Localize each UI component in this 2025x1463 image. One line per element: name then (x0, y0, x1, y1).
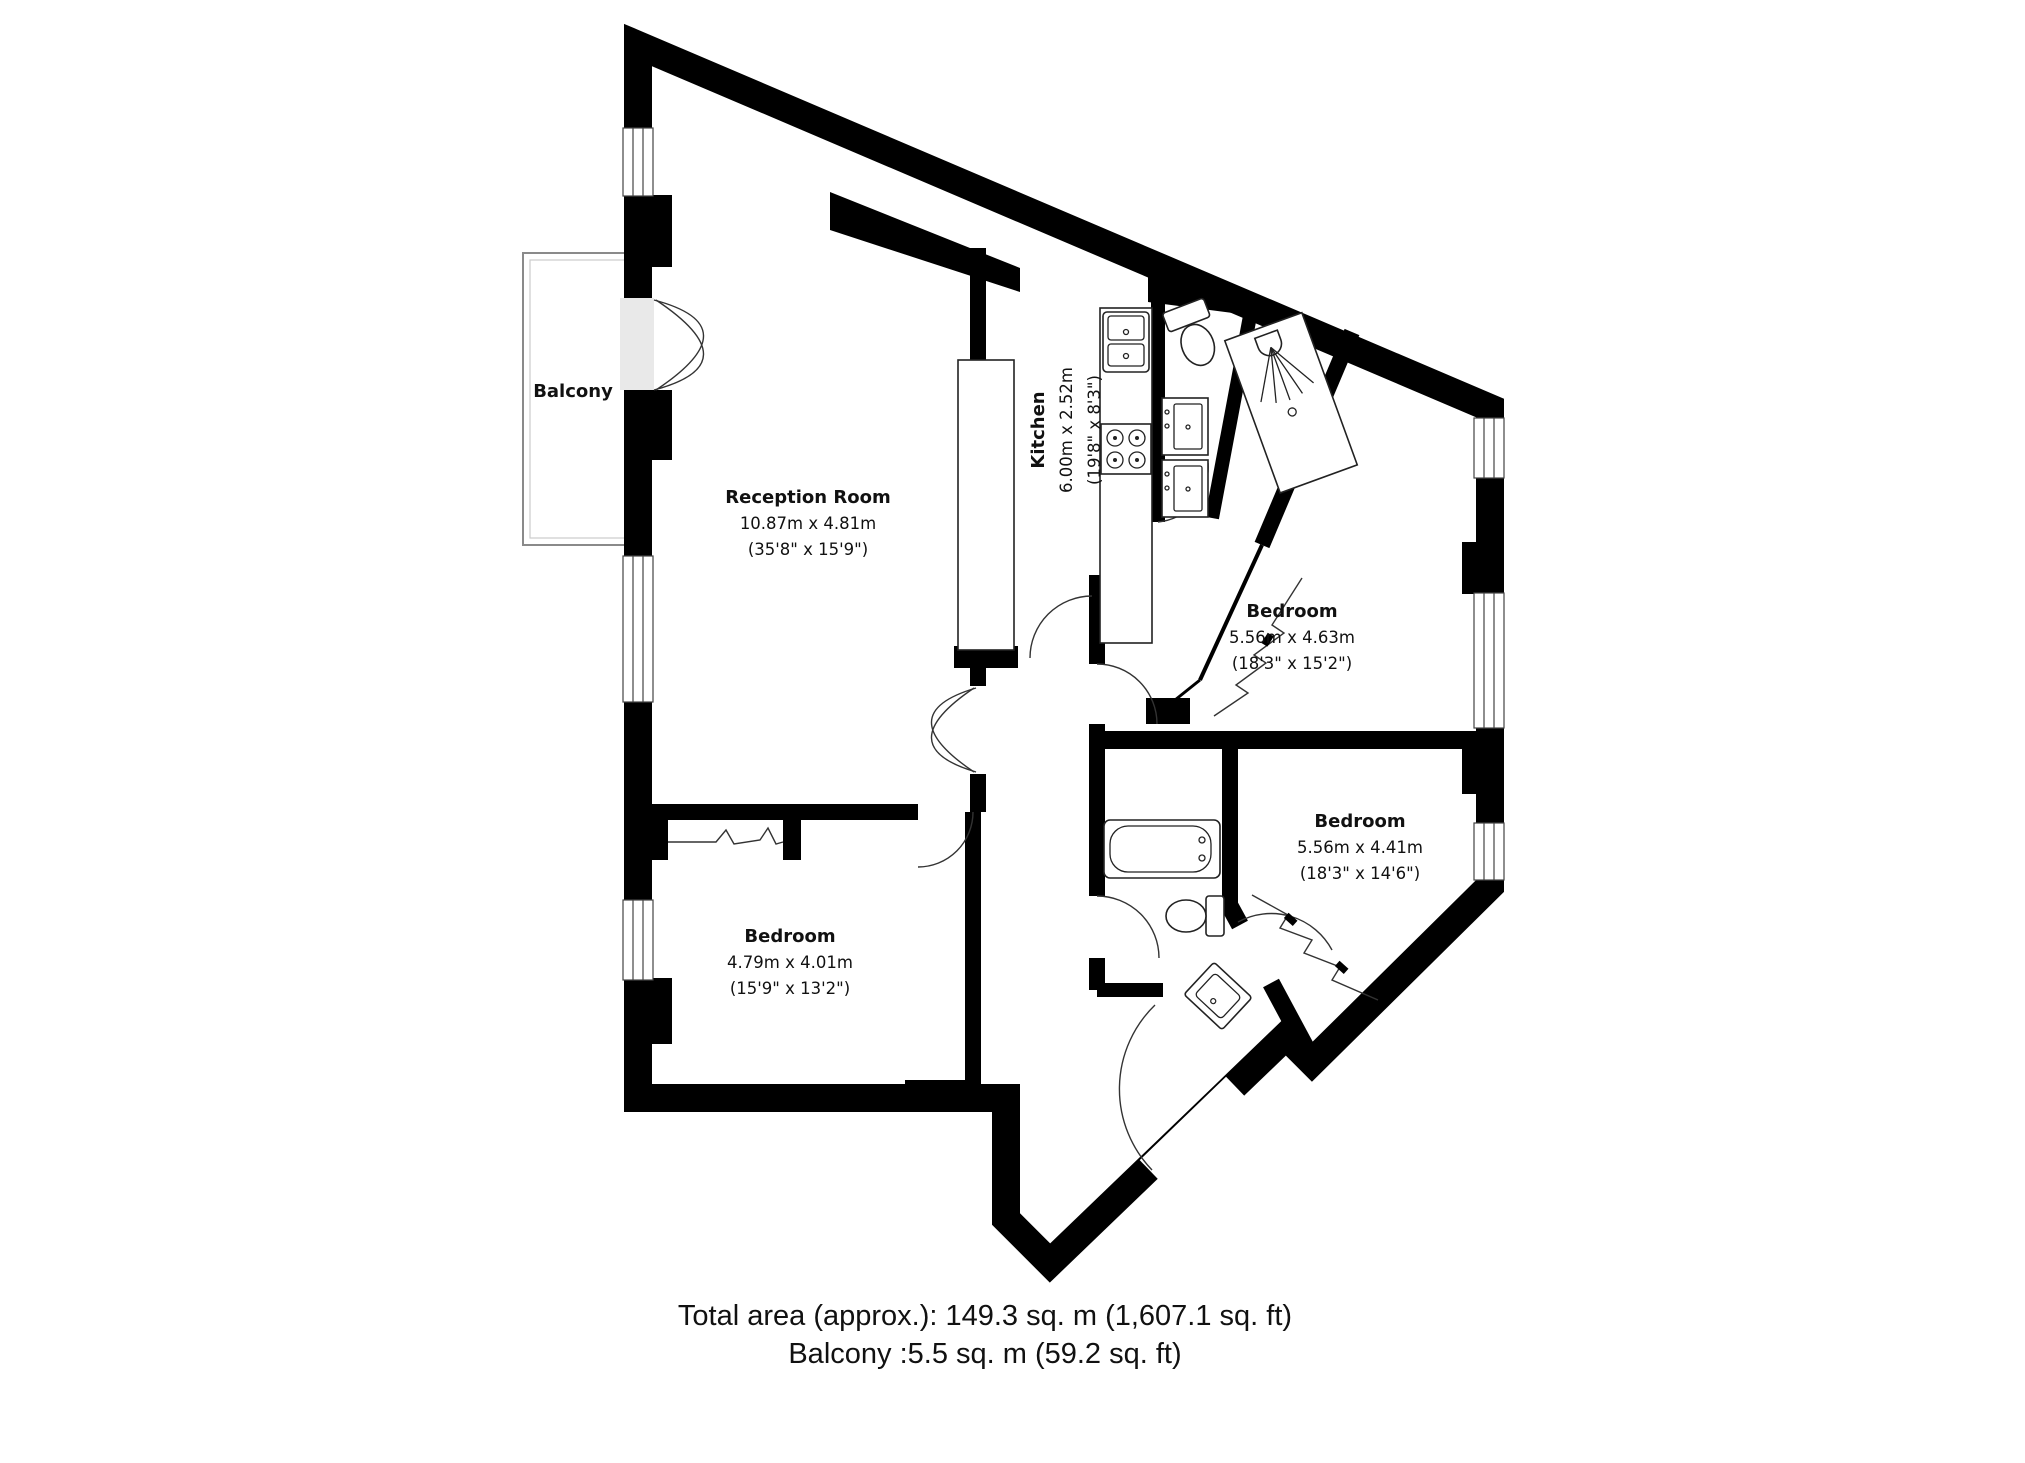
balcony-label: Balcony (533, 381, 613, 402)
window-left-2 (623, 556, 653, 702)
bedroom-tr-dims-imperial: (18'3" x 15'2") (1232, 654, 1352, 673)
reception-dims-imperial: (35'8" x 15'9") (748, 540, 868, 559)
room-label-kitchen: Kitchen 6.00m x 2.52m (19'8" x 8'3") (1028, 367, 1104, 493)
window-left-1 (623, 128, 653, 196)
bedroom-tr-dims-metric: 5.56m x 4.63m (1229, 628, 1355, 647)
reception-dims-metric: 10.87m x 4.81m (740, 514, 876, 533)
entrance-door (1119, 1005, 1248, 1183)
bedroom-br-dims-imperial: (18'3" x 14'6") (1300, 864, 1420, 883)
bedroom-tr-name: Bedroom (1246, 601, 1337, 622)
reception-name: Reception Room (725, 487, 890, 508)
kitchen-dims-metric: 6.00m x 2.52m (1057, 367, 1076, 493)
kitchen-door (1030, 596, 1092, 658)
bedroom-bl-name: Bedroom (744, 926, 835, 947)
room-label-bedroom-topright: Bedroom 5.56m x 4.63m (18'3" x 15'2") (1229, 601, 1355, 673)
wardrobe-topright (1214, 578, 1302, 716)
window-left-3 (623, 900, 653, 980)
window-right-1 (1474, 418, 1504, 478)
floorplan-page: Balcony (0, 0, 2025, 1463)
balcony-door (620, 298, 704, 390)
kitchen-sink (1100, 308, 1152, 643)
bathtub-icon (1104, 820, 1220, 878)
bathroom-door (1097, 896, 1159, 958)
footer: Total area (approx.): 149.3 sq. m (1,607… (678, 1300, 1292, 1370)
bedroom-bottomleft-door (918, 812, 973, 867)
bedroom-bl-dims-metric: 4.79m x 4.01m (727, 953, 853, 972)
toilet-bathroom-icon (1166, 896, 1224, 936)
basin-icon (1184, 962, 1252, 1030)
exterior-walls (638, 45, 1490, 1263)
bedroom-br-dims-metric: 5.56m x 4.41m (1297, 838, 1423, 857)
total-area-text: Total area (approx.): 149.3 sq. m (1,607… (678, 1300, 1292, 1332)
balcony: Balcony (523, 253, 640, 545)
wardrobe-bottomleft (668, 828, 783, 844)
window-right-2 (1474, 593, 1504, 728)
bedroom-br-name: Bedroom (1314, 811, 1405, 832)
kitchen-dims-imperial: (19'8" x 8'3") (1085, 375, 1104, 485)
oven-units (1162, 398, 1208, 517)
window-right-3 (1474, 823, 1504, 880)
room-label-bedroom-bottomright: Bedroom 5.56m x 4.41m (18'3" x 14'6") (1297, 811, 1423, 883)
floorplan-drawing: Balcony (0, 0, 2025, 1463)
kitchen-counter-peninsula (958, 360, 1014, 650)
reception-hall-doors (931, 688, 976, 772)
bedroom-bl-dims-imperial: (15'9" x 13'2") (730, 979, 850, 998)
balcony-area-text: Balcony :5.5 sq. m (59.2 sq. ft) (788, 1338, 1181, 1370)
room-label-bedroom-bottomleft: Bedroom 4.79m x 4.01m (15'9" x 13'2") (727, 926, 853, 998)
room-label-reception: Reception Room 10.87m x 4.81m (35'8" x 1… (725, 487, 890, 559)
hob (1101, 424, 1151, 474)
kitchen-name: Kitchen (1028, 391, 1049, 468)
